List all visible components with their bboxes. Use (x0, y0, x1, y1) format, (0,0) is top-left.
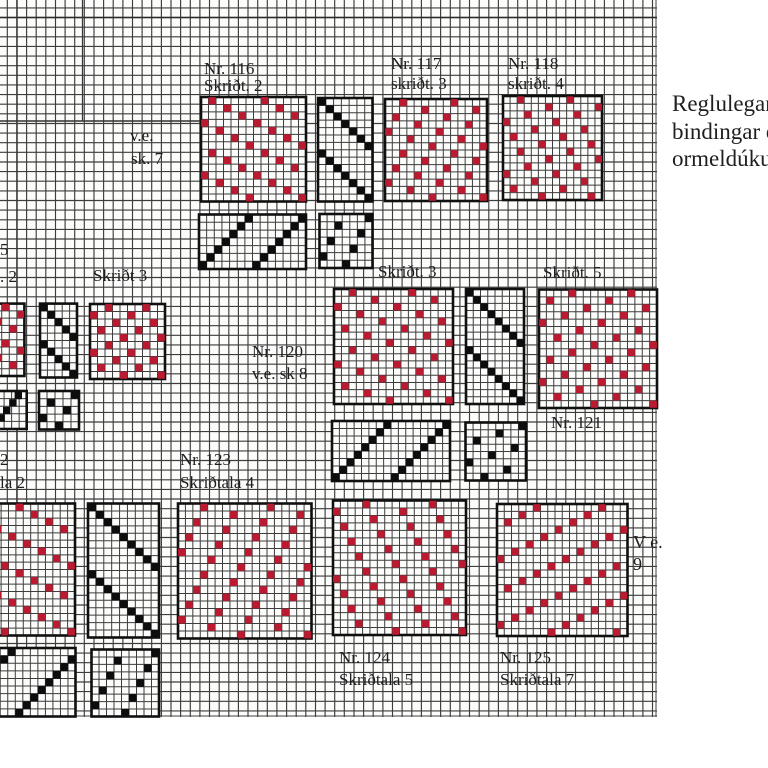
svg-text:Nr. 125: Nr. 125 (500, 648, 551, 667)
svg-text:Skriðt 3: Skriðt 3 (93, 266, 147, 285)
svg-text:Skriðt. 5: Skriðt. 5 (543, 263, 602, 282)
svg-text:Skriðt. 2: Skriðt. 2 (204, 76, 263, 95)
svg-text:Nr. 123: Nr. 123 (180, 450, 231, 469)
svg-text:. 2: . 2 (0, 267, 17, 286)
svg-text:ormeldúku: ormeldúku (672, 146, 768, 171)
svg-text:2: 2 (0, 450, 9, 469)
svg-text:9: 9 (633, 554, 642, 574)
svg-text:Skriðtala 4: Skriðtala 4 (180, 473, 255, 492)
svg-text:v.e.: v.e. (130, 126, 153, 145)
svg-text:Nr. 121: Nr. 121 (551, 413, 602, 432)
svg-text:Nr. 117: Nr. 117 (391, 54, 442, 73)
svg-text:Skriðt. 3: Skriðt. 3 (378, 262, 437, 281)
svg-text:v.e. sk 8: v.e. sk 8 (252, 364, 308, 383)
svg-text:Reglulegar: Reglulegar (672, 91, 768, 116)
svg-text:la 2: la 2 (0, 473, 25, 492)
svg-text:skriðt. 4: skriðt. 4 (508, 74, 564, 93)
svg-text:Nr. 120: Nr. 120 (252, 342, 303, 361)
svg-text:Skriðtala 5: Skriðtala 5 (339, 670, 413, 689)
svg-text:V e.: V e. (633, 532, 663, 552)
svg-text:skriðt. 3: skriðt. 3 (391, 74, 447, 93)
svg-text:bindingar e: bindingar e (672, 119, 768, 144)
svg-text:Nr. 124: Nr. 124 (339, 648, 391, 667)
svg-text:5: 5 (0, 240, 9, 259)
svg-text:Skriðtala 7: Skriðtala 7 (500, 670, 575, 689)
svg-text:sk. 7: sk. 7 (131, 149, 164, 168)
svg-text:Nr. 118: Nr. 118 (508, 54, 558, 73)
